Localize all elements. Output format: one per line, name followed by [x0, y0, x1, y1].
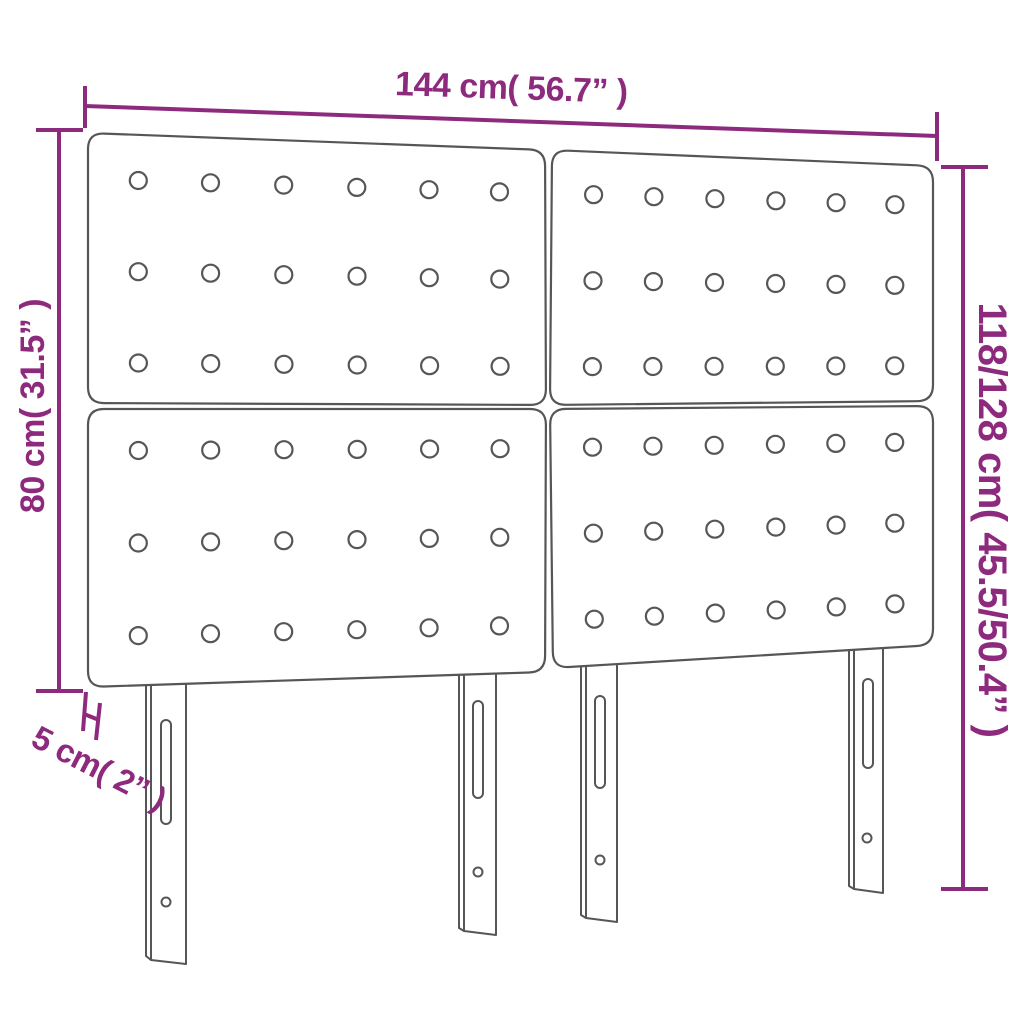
tufting-button: [349, 531, 366, 548]
tufting-button: [828, 517, 845, 534]
tufting-button: [706, 358, 723, 375]
tufting-button: [645, 273, 662, 290]
tufting-button: [491, 183, 508, 200]
tufting-button: [584, 358, 601, 375]
leg-slot: [595, 696, 605, 788]
tufting-button: [130, 442, 147, 459]
tufting-button: [492, 358, 509, 375]
tufting-button: [645, 188, 662, 205]
tufting-button: [827, 435, 844, 452]
tufting-button: [828, 194, 845, 211]
tufting-button: [584, 439, 601, 456]
tufting-button: [275, 177, 292, 194]
tufting-button: [491, 529, 508, 546]
tufting-button: [421, 619, 438, 636]
leg-1: [146, 681, 186, 964]
tufting-button: [828, 598, 845, 615]
leg-screw-hole: [863, 834, 872, 843]
panel-bottom-left: [88, 409, 546, 687]
tufting-button: [886, 595, 903, 612]
tufting-button: [348, 621, 365, 638]
tufting-button: [421, 530, 438, 547]
thickness-bracket-line-1: [83, 692, 86, 731]
tufting-button: [706, 521, 723, 538]
tufting-button: [767, 358, 784, 375]
tufting-button: [421, 357, 438, 374]
tufting-button: [275, 532, 292, 549]
tufting-button: [348, 179, 365, 196]
panel-bottom-right: [550, 406, 933, 667]
panel-top-left: [88, 134, 546, 405]
tufting-button: [421, 441, 438, 458]
tufting-button: [585, 525, 602, 542]
tufting-button: [275, 266, 292, 283]
tufting-button: [421, 181, 438, 198]
tufting-button: [349, 357, 366, 374]
leg-2: [459, 668, 496, 935]
tufting-button: [585, 186, 602, 203]
tufting-button: [491, 617, 508, 634]
tufting-button: [645, 438, 662, 455]
tufting-button: [828, 276, 845, 293]
tufting-button: [706, 437, 723, 454]
tufting-button: [130, 535, 147, 552]
panel-height-dimension-label: 80 cm( 31.5” ): [14, 299, 52, 513]
tufting-button: [767, 436, 784, 453]
tufting-button: [767, 192, 784, 209]
width-dimension-label: 144 cm( 56.7” ): [395, 65, 629, 111]
tufting-button: [130, 627, 147, 644]
tufting-button: [707, 605, 724, 622]
tufting-button: [586, 611, 603, 628]
tufting-button: [276, 441, 293, 458]
tufting-button: [768, 602, 785, 619]
leg-screw-hole: [474, 868, 483, 877]
tufting-button: [886, 515, 903, 532]
leg-slot: [473, 701, 483, 798]
tufting-button: [491, 271, 508, 288]
tufting-button: [275, 623, 292, 640]
panels-group: [88, 134, 933, 687]
tufting-button: [646, 608, 663, 625]
tufting-button: [276, 356, 293, 373]
leg-screw-hole: [162, 898, 171, 907]
tufting-button: [645, 523, 662, 540]
width-dimension-line: [85, 106, 937, 136]
tufting-button: [202, 625, 219, 642]
tufting-button: [886, 357, 903, 374]
tufting-button: [886, 434, 903, 451]
tufting-button: [706, 190, 723, 207]
tufting-button: [349, 441, 366, 458]
tufting-button: [202, 265, 219, 282]
tufting-button: [886, 196, 903, 213]
tufting-button: [492, 440, 509, 457]
tufting-button: [706, 274, 723, 291]
tufting-button: [349, 268, 366, 285]
leg-slot: [863, 679, 873, 768]
legs-group: [146, 646, 883, 964]
tufting-button: [767, 519, 784, 536]
tufting-button: [886, 277, 903, 294]
diagram-stage: 144 cm( 56.7” ) 80 cm( 31.5” ) 118/128 c…: [0, 0, 1024, 1024]
tufting-button: [202, 533, 219, 550]
total-height-dimension-label: 118/128 cm( 45.5/50.4” ): [970, 303, 1014, 738]
tufting-button: [130, 172, 147, 189]
tufting-button: [767, 275, 784, 292]
tufting-button: [421, 269, 438, 286]
tufting-button: [202, 442, 219, 459]
panel-top-right: [550, 151, 933, 405]
tufting-button: [130, 355, 147, 372]
headboard-dimension-diagram: 144 cm( 56.7” ) 80 cm( 31.5” ) 118/128 c…: [0, 0, 1024, 1024]
tufting-button: [585, 272, 602, 289]
tufting-button: [202, 355, 219, 372]
leg-slot: [161, 720, 171, 824]
tufting-button: [827, 358, 844, 375]
leg-4: [849, 646, 883, 893]
tufting-button: [202, 174, 219, 191]
tufting-button: [130, 263, 147, 280]
tufting-button: [644, 358, 661, 375]
leg-3: [581, 661, 617, 922]
leg-screw-hole: [596, 856, 605, 865]
